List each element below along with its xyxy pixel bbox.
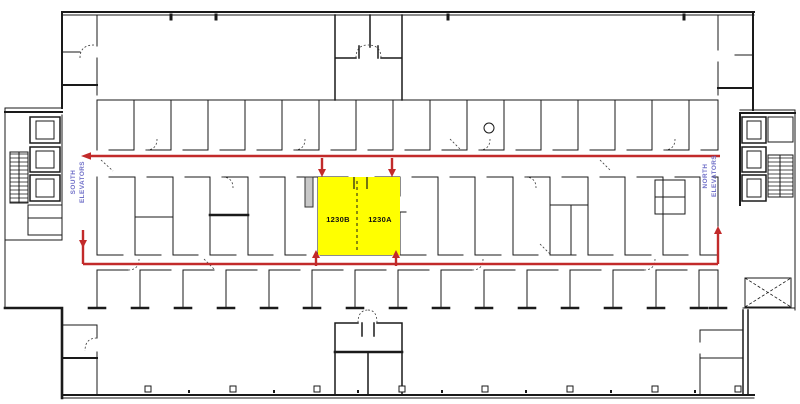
column-markers xyxy=(145,386,741,393)
floor-plan-drawing: 1230B 1230A SOUTH ELEVATORS NORTH ELEVAT… xyxy=(0,0,800,404)
wall-shaft xyxy=(305,177,313,207)
north-elevator-core xyxy=(742,117,793,307)
north-stairs xyxy=(768,155,793,197)
north-elevators-label-line2: ELEVATORS xyxy=(711,155,718,197)
south-elevators-label-line2: ELEVATORS xyxy=(79,161,86,203)
south-elevators-label-line1: SOUTH xyxy=(70,170,77,195)
room-label-1230a: 1230A xyxy=(368,215,392,224)
south-stairs xyxy=(10,152,28,203)
floor-plan-viewport: 1230B 1230A SOUTH ELEVATORS NORTH ELEVAT… xyxy=(0,0,800,404)
corridor-route-lines xyxy=(83,156,720,266)
north-elevators-label-line1: NORTH xyxy=(702,164,709,189)
entry-arrow-down-b xyxy=(318,169,326,177)
room-label-1230b: 1230B xyxy=(326,215,350,224)
shaft-cross-room xyxy=(745,278,791,307)
route-arrow-west xyxy=(81,152,91,159)
south-elevator-core xyxy=(10,117,62,235)
highlighted-room[interactable]: 1230B 1230A xyxy=(305,177,400,255)
entry-arrow-down-a xyxy=(388,169,396,177)
route-arrow-up-right xyxy=(714,226,722,234)
route-arrow-down-left xyxy=(79,240,87,248)
column-ticks xyxy=(189,390,695,393)
